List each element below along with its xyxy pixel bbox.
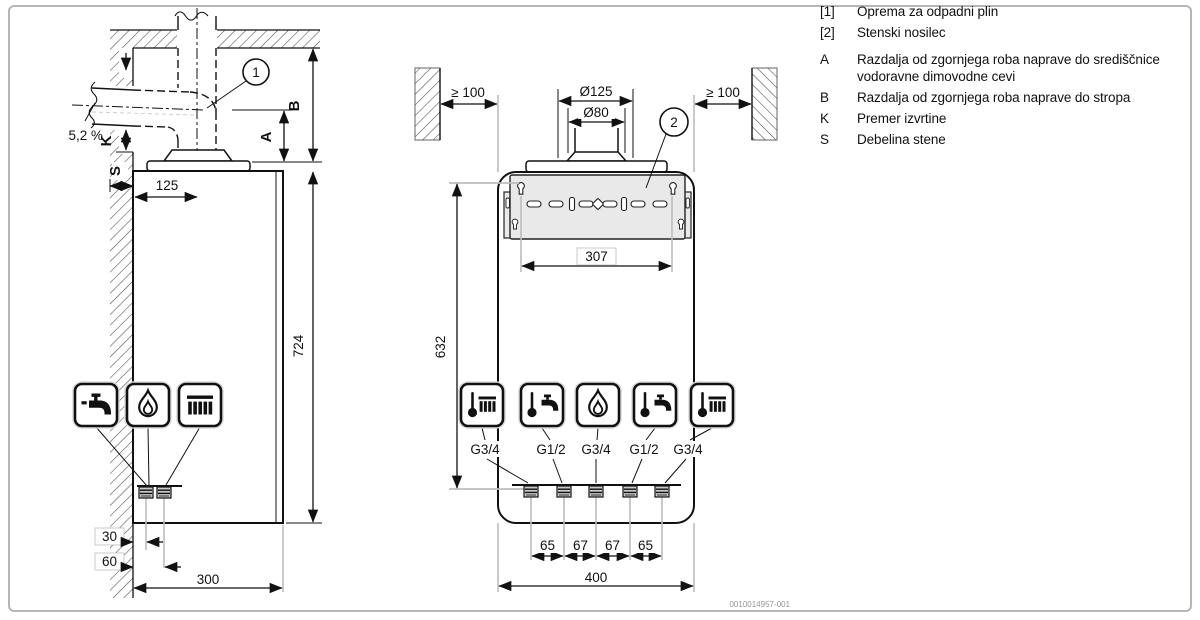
svg-text:G1/2: G1/2 (629, 442, 658, 457)
boiler-side (133, 171, 283, 523)
legend-item-a: A Razdalja od zgornjega roba naprave do … (820, 51, 1188, 87)
legend-key: A (820, 51, 857, 87)
legend-item-2: [2] Stenski nosilec (820, 24, 1188, 42)
legend-text: Premer izvrtine (857, 110, 1188, 128)
front-wall-left (415, 68, 440, 140)
flue-collar-cone-side (164, 150, 232, 161)
svg-text:65: 65 (638, 538, 653, 553)
drawing-number: 0010014957-001 (729, 600, 790, 609)
dim-300: 300 (134, 572, 282, 588)
legend: [1] Oprema za odpadni plin [2] Stenski n… (820, 3, 1188, 152)
dim-dia125: Ø125 (559, 84, 632, 101)
svg-text:A: A (258, 131, 275, 142)
callout-2-number: 2 (670, 115, 678, 130)
front-view: ≥ 100 ≥ 100 Ø125 (415, 68, 777, 592)
svg-text:60: 60 (102, 554, 117, 569)
svg-text:67: 67 (573, 538, 588, 553)
legend-item-1: [1] Oprema za odpadni plin (820, 3, 1188, 21)
svg-text:G1/2: G1/2 (536, 442, 565, 457)
callout-1-number: 1 (252, 65, 260, 80)
svg-text:300: 300 (197, 572, 220, 587)
legend-key: B (820, 89, 857, 107)
svg-text:400: 400 (585, 570, 608, 585)
svg-text:S: S (107, 166, 124, 176)
legend-item-k: K Premer izvrtine (820, 110, 1188, 128)
manual-diagram-page: 1 5,2 % K S 125 (0, 0, 1200, 620)
legend-text: Razdalja od zgornjega roba naprave do sr… (857, 51, 1188, 87)
svg-text:B: B (286, 100, 303, 111)
svg-text:632: 632 (433, 336, 448, 359)
legend-item-s: S Debelina stene (820, 131, 1188, 149)
svg-text:Ø80: Ø80 (583, 105, 609, 120)
dim-dia80: Ø80 (569, 105, 624, 122)
legend-text: Stenski nosilec (857, 24, 1188, 42)
legend-text: Razdalja od zgornjega roba naprave do st… (857, 89, 1188, 107)
dim-60: 60 (95, 553, 181, 570)
legend-key: K (820, 110, 857, 128)
dim-clearance-left: ≥ 100 (441, 85, 497, 104)
svg-text:Ø125: Ø125 (579, 84, 612, 99)
legend-key: [2] (820, 24, 857, 42)
legend-text: Debelina stene (857, 131, 1188, 149)
svg-text:K: K (98, 135, 115, 146)
svg-text:G3/4: G3/4 (581, 442, 611, 457)
wall-hatch (110, 48, 133, 598)
svg-text:125: 125 (156, 178, 179, 193)
svg-text:65: 65 (540, 538, 555, 553)
svg-text:G3/4: G3/4 (470, 442, 500, 457)
wall-bracket (504, 175, 691, 239)
svg-text:30: 30 (102, 529, 117, 544)
legend-item-b: B Razdalja od zgornjega roba naprave do … (820, 89, 1188, 107)
svg-text:307: 307 (585, 249, 608, 264)
svg-text:≥ 100: ≥ 100 (706, 85, 740, 100)
flue-flange-side (147, 161, 250, 171)
flue-front (526, 89, 667, 177)
radiator-icon (187, 396, 213, 415)
svg-text:724: 724 (291, 334, 306, 357)
legend-key: S (820, 131, 857, 149)
legend-text: Oprema za odpadni plin (857, 3, 1188, 21)
svg-text:G3/4: G3/4 (673, 442, 703, 457)
svg-text:≥ 100: ≥ 100 (451, 85, 485, 100)
front-wall-right (752, 68, 777, 140)
dim-724: 724 (286, 172, 322, 523)
dim-b: B (286, 49, 313, 161)
dim-a: A (232, 110, 322, 162)
ceiling-hatch (110, 30, 320, 48)
dim-clearance-right: ≥ 100 (695, 85, 751, 104)
side-view: 1 5,2 % K S 125 (68, 8, 322, 598)
legend-key: [1] (820, 3, 857, 21)
svg-text:67: 67 (605, 538, 620, 553)
